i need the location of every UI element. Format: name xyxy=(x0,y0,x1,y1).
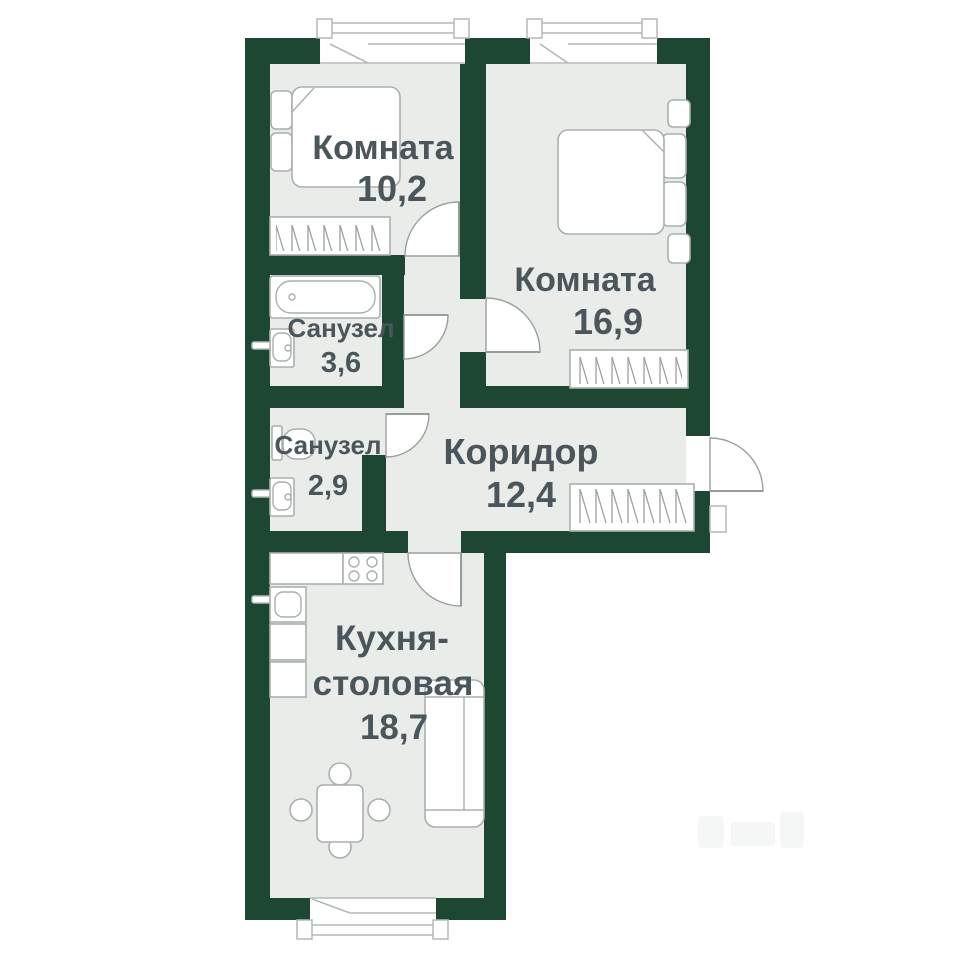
kitchen-label-line1: Кухня- xyxy=(335,619,449,658)
wardrobe-room-large-icon xyxy=(570,350,688,388)
wall-room-large-bottom xyxy=(460,386,686,408)
stove-icon xyxy=(343,553,383,584)
doorway-kitchen xyxy=(408,531,461,553)
corridor-area: 12,4 xyxy=(486,474,556,515)
wall-left xyxy=(245,38,270,920)
balcony-rail-icon xyxy=(527,19,657,38)
door-swing-entrance-icon xyxy=(710,438,763,491)
wall-corridor-bottom xyxy=(461,531,710,553)
room-large-label: Комната xyxy=(514,261,656,299)
doorway-room-small xyxy=(405,255,459,275)
window-opening-kitchen xyxy=(310,898,436,920)
floor-plan-page: Комната 10,2 Комната 16,9 Санузел 3,6 Са… xyxy=(0,0,960,960)
room-large-area: 16,9 xyxy=(573,301,643,342)
room-small-label: Комната xyxy=(312,129,454,167)
doorway-room-large xyxy=(460,299,486,352)
wall-mid-left xyxy=(245,386,404,408)
wardrobe-room-small-icon xyxy=(270,217,390,255)
bathtub-icon xyxy=(270,276,380,318)
wardrobe-corridor-icon xyxy=(570,484,694,531)
floor-plan: Комната 10,2 Комната 16,9 Санузел 3,6 Са… xyxy=(0,0,960,960)
kitchen-label-line2: столовая xyxy=(313,664,474,703)
corridor-label: Коридор xyxy=(444,431,599,472)
wall-below-room-small xyxy=(245,255,405,275)
wall-rooms-divider xyxy=(460,38,486,299)
watermark xyxy=(698,812,804,848)
wall-bathroom-small-right xyxy=(362,455,386,531)
balcony-rail-icon xyxy=(297,920,448,939)
entrance-opening xyxy=(686,436,710,491)
entrance-threshold xyxy=(710,506,726,532)
kitchen-area: 18,7 xyxy=(360,708,428,747)
bathroom-large-area: 3,6 xyxy=(321,347,361,379)
room-small-area: 10,2 xyxy=(357,168,427,209)
bathroom-small-label: Санузел xyxy=(275,430,382,460)
bathroom-large-label: Санузел xyxy=(288,313,395,343)
wall-kitchen-top xyxy=(245,531,408,553)
wall-kitchen-right xyxy=(484,553,506,920)
balcony-rail-icon xyxy=(317,19,469,38)
bathroom-small-area: 2,9 xyxy=(308,470,348,502)
